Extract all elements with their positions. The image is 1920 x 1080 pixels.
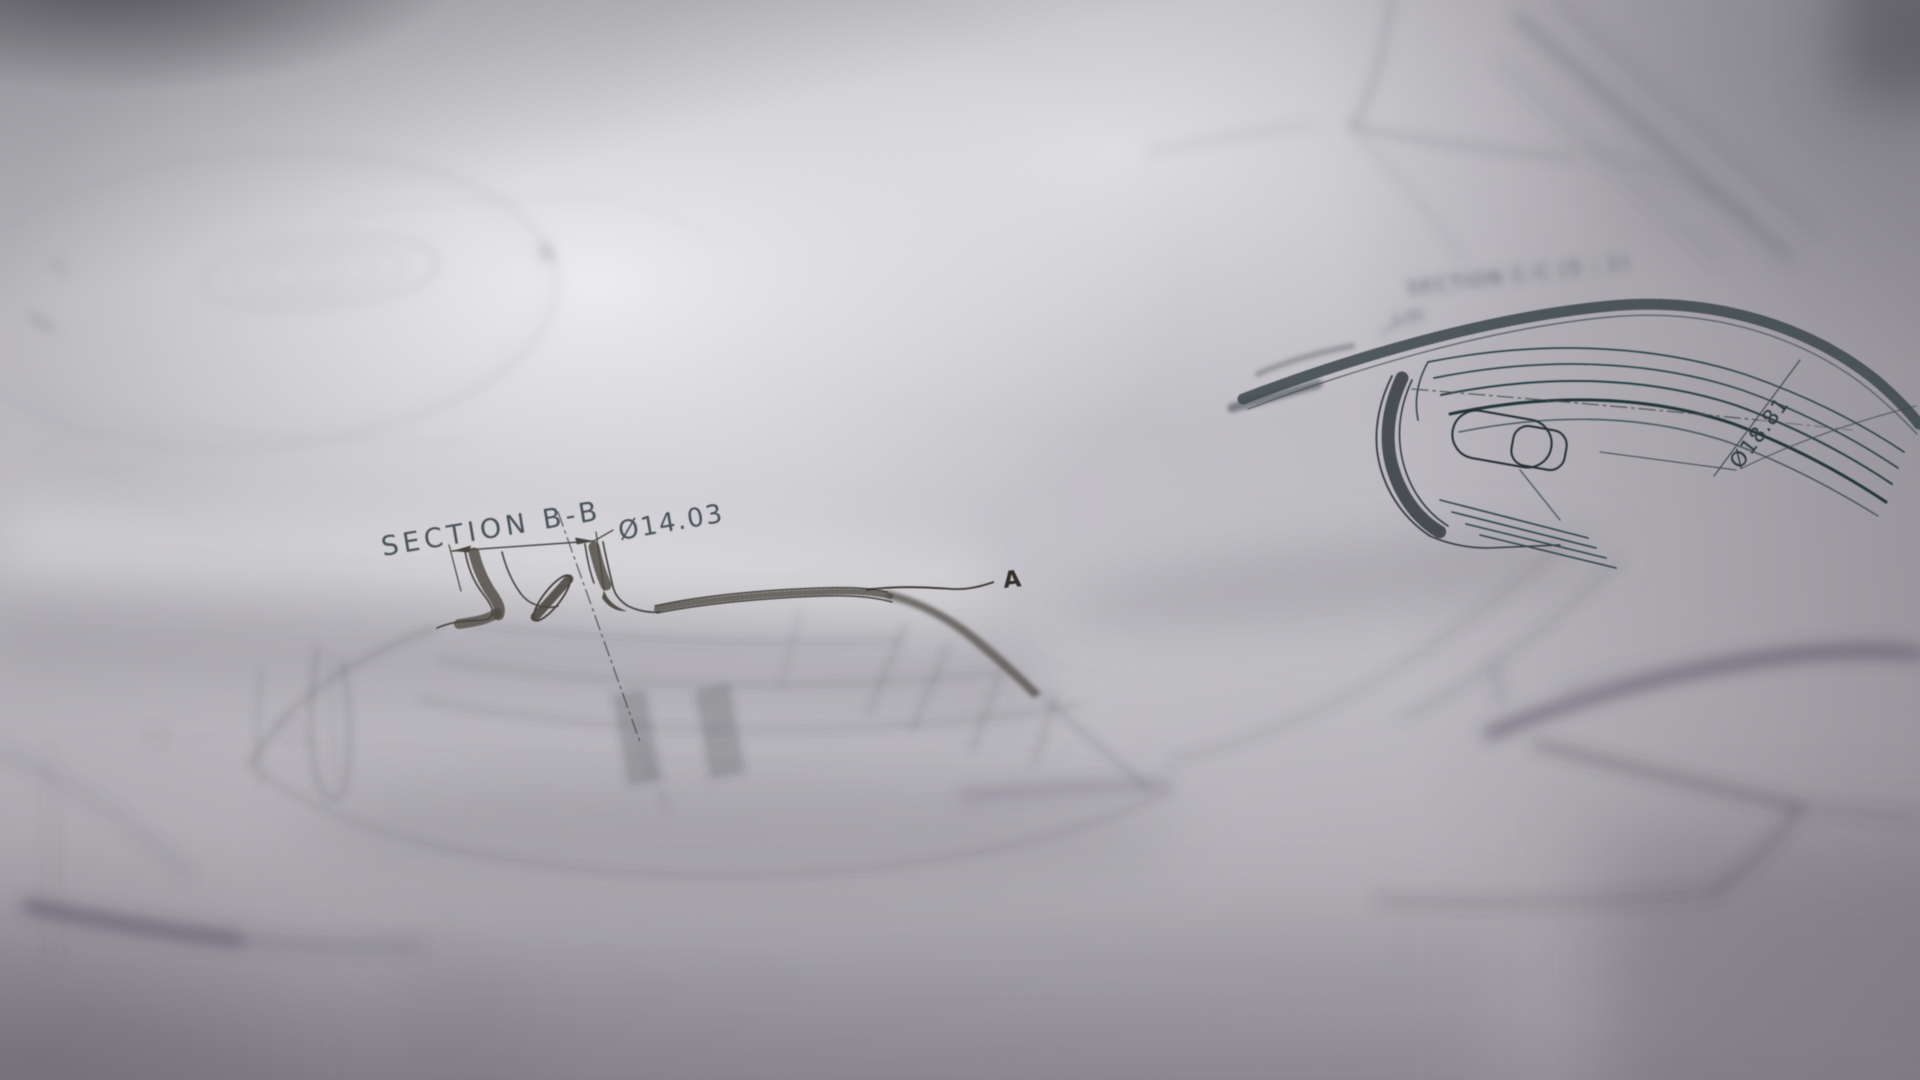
film-grain-overlay xyxy=(0,0,1920,1080)
drawing-linework: SECTION C-C (5 : 1) 1.05 xyxy=(0,0,1920,1080)
photo-of-technical-drawings: SECTION C-C (5 : 1) 1.05 xyxy=(0,0,1920,1080)
